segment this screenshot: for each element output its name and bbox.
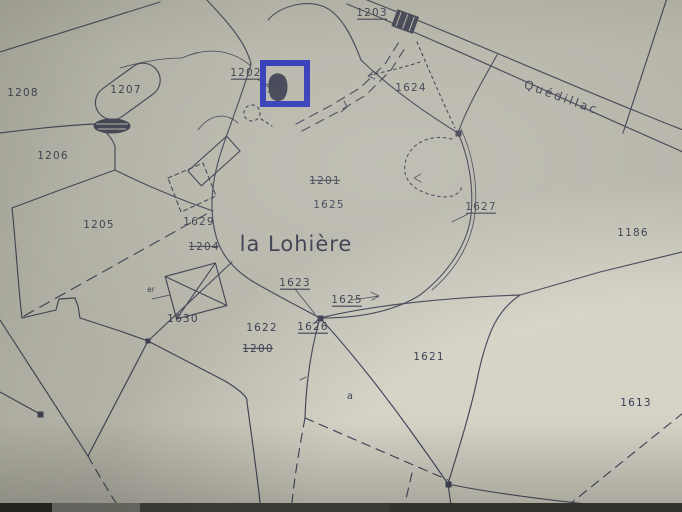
boundary-southwest-lane [148, 341, 261, 512]
dotted-circle-tail [261, 119, 272, 126]
track-edge-1 [296, 42, 399, 124]
boundary-crossing-road [623, 0, 667, 133]
place-name-label: la Lohière [240, 232, 353, 256]
double-dash-track [296, 42, 405, 131]
boundary-1208-1206 [0, 124, 95, 133]
parcel-boundaries [0, 124, 682, 512]
dotted-arc [405, 137, 462, 197]
parcel-label-1201: 1201 [309, 175, 341, 187]
slope-hachures [0, 310, 146, 446]
parcel-label-1613: 1613 [620, 397, 652, 409]
boundary-1621-west [320, 318, 448, 484]
building-1630 [165, 263, 227, 319]
dashed-boundary-corner [560, 413, 682, 512]
parcel-label-1625: 1625 [331, 294, 363, 306]
dashed-annex [168, 163, 216, 212]
parcel-label-1630: 1630 [167, 313, 199, 325]
parcel-label-1627: 1627 [465, 201, 497, 213]
enclosure-gate-curve2 [120, 58, 182, 68]
parcel-label-1622: 1622 [246, 322, 278, 334]
dashed-boundary-1205 [24, 212, 210, 316]
building-1202 [269, 74, 287, 101]
cadastral-map-photo: Quédillac [0, 0, 682, 512]
parcel-label-1207: 1207 [110, 84, 142, 96]
boundary-1205-south [22, 298, 148, 341]
road-name-label: Quédillac [522, 77, 601, 117]
parcel-label-1625: 1625 [313, 199, 345, 211]
parcel-label-1208: 1208 [7, 87, 39, 99]
bank-curve-ticked [268, 4, 361, 60]
boundary-1206-1205 [12, 170, 115, 208]
survey-node [446, 482, 451, 487]
parcel-label-1206: 1206 [37, 150, 69, 162]
boundary-tick [300, 377, 306, 380]
er-label: er [147, 285, 156, 294]
parcel-label-1623: 1623 [279, 277, 311, 289]
building-1203 [392, 10, 418, 33]
track-edge-2 [302, 48, 405, 131]
enclosure-east-boundary [321, 133, 472, 318]
photo-edge [0, 503, 682, 512]
enclosure-west-boundary [205, 0, 320, 318]
parcel-label-1621: 1621 [413, 351, 445, 363]
survey-node [456, 131, 461, 136]
parcel-label-1202: 1202 [230, 67, 262, 79]
talus-right-arm [88, 341, 148, 456]
cadastral-map: Quédillac [0, 0, 682, 512]
parcel-label-1624: 1624 [395, 82, 427, 94]
small-bank-curve [198, 116, 238, 130]
boundary-1205-north [115, 170, 213, 211]
embankment-hachures [0, 2, 235, 52]
la-lohiere-enclosure [120, 0, 497, 318]
dotted-arc-arrow [414, 174, 421, 182]
survey-node [146, 339, 150, 343]
boundary-1621-1613 [448, 295, 520, 484]
parcel-label-1204: 1204 [188, 241, 220, 253]
parcel-label-1200: 1200 [242, 343, 274, 355]
boundary-1186-south [520, 252, 682, 295]
label-1627-leader [452, 214, 468, 222]
parcel-label-1186: 1186 [617, 227, 649, 239]
dashed-boundary-south [291, 418, 305, 512]
boundary-1205-west [12, 208, 22, 318]
bank-ticks [293, 2, 359, 57]
parcel-label-1205: 1205 [83, 219, 115, 231]
pond [94, 119, 130, 133]
dotted-circle [244, 105, 260, 121]
letter-a-label: a [347, 391, 353, 402]
boundary-stub-west [0, 392, 40, 414]
building-1630-stub [152, 295, 170, 299]
enclosure-north-boundary [361, 60, 458, 133]
dashed-boundary-diagonal [305, 418, 448, 480]
parcel-label-1626: 1626 [297, 321, 329, 333]
parcel-label-1203: 1203 [356, 7, 388, 19]
parcel-labels: 1208120712061205120312021624120116251627… [7, 7, 652, 409]
survey-node [38, 412, 43, 417]
enclosure-gate-curve [182, 51, 251, 66]
talus-left-arm [0, 320, 88, 456]
buildings [89, 10, 419, 319]
parcel-label-1629: 1629 [183, 216, 215, 228]
